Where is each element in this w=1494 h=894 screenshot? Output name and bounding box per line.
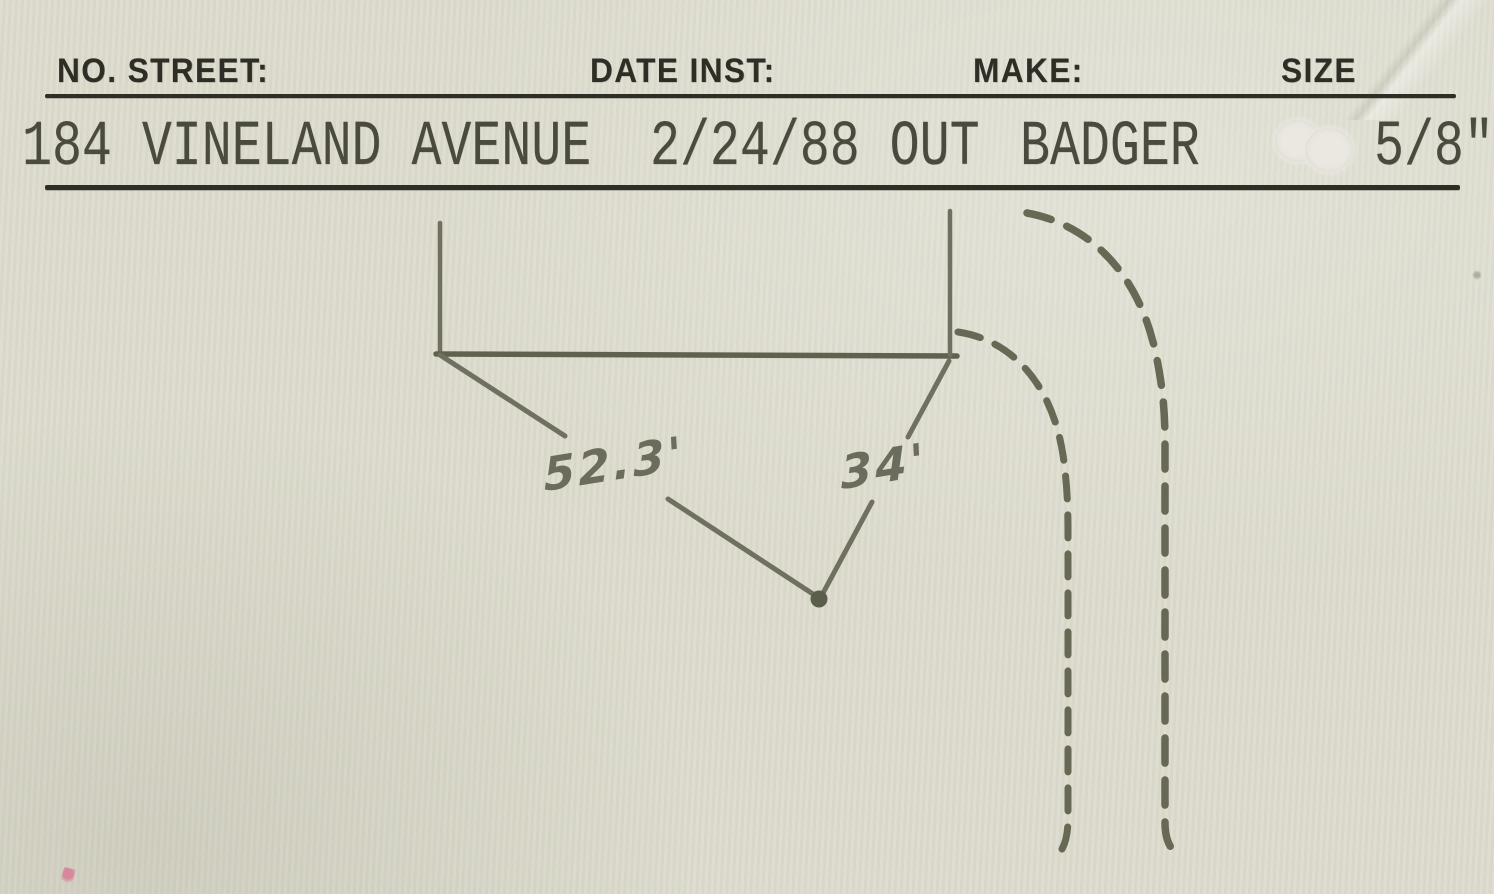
curb-line-outer — [1027, 213, 1179, 856]
plot-sketch — [0, 0, 1494, 894]
meter-location-dot — [811, 591, 828, 608]
leader-line-left-lower — [668, 499, 816, 596]
building-front-wall — [436, 354, 957, 356]
leader-line-right-upper — [908, 361, 949, 437]
paper-smudge — [1472, 270, 1482, 280]
leader-line-right-lower — [822, 502, 872, 595]
index-card: NO. STREET: DATE INST: MAKE: SIZE 184 VI… — [0, 0, 1494, 894]
curb-line-inner — [958, 332, 1068, 857]
leader-line-left-upper — [440, 355, 565, 436]
